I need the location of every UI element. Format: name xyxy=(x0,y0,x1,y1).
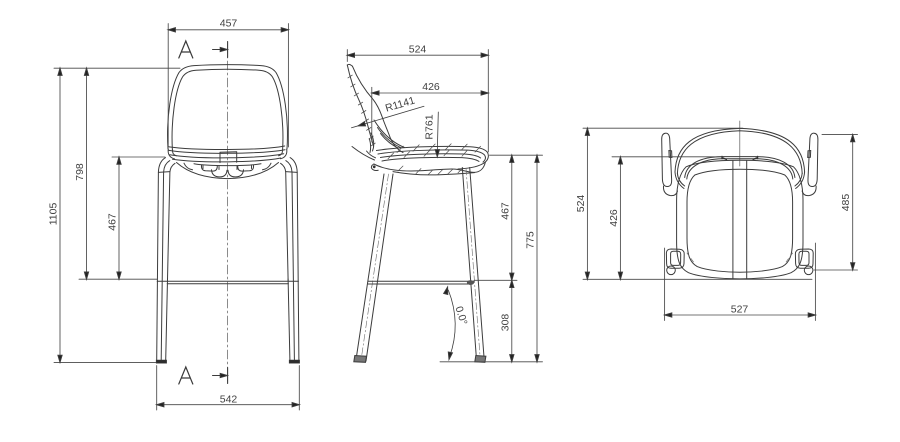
svg-text:457: 457 xyxy=(220,17,238,29)
svg-text:467: 467 xyxy=(107,213,119,231)
svg-text:524: 524 xyxy=(575,195,587,213)
svg-text:775: 775 xyxy=(525,231,537,249)
svg-text:426: 426 xyxy=(422,81,440,93)
svg-text:R1141: R1141 xyxy=(384,95,416,115)
svg-text:524: 524 xyxy=(409,43,427,55)
svg-text:467: 467 xyxy=(499,202,511,220)
svg-text:542: 542 xyxy=(220,394,238,406)
svg-text:308: 308 xyxy=(499,314,511,332)
svg-text:R761: R761 xyxy=(424,114,436,139)
svg-text:1105: 1105 xyxy=(48,203,60,226)
svg-text:485: 485 xyxy=(840,194,852,212)
svg-text:426: 426 xyxy=(608,209,620,227)
svg-text:527: 527 xyxy=(731,304,749,316)
svg-text:798: 798 xyxy=(74,163,86,181)
